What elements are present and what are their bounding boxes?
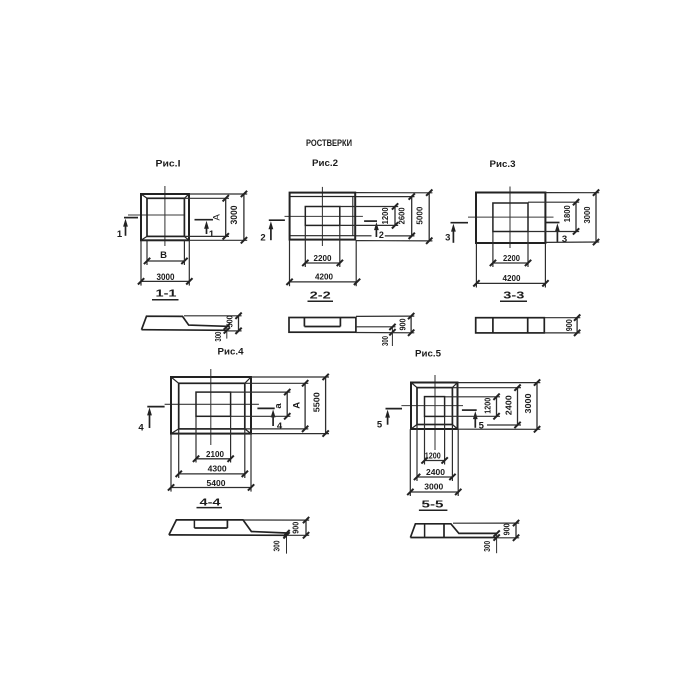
svg-text:4200: 4200 bbox=[315, 271, 333, 281]
svg-text:4200: 4200 bbox=[503, 273, 521, 283]
svg-text:900: 900 bbox=[292, 521, 301, 533]
svg-text:Рис.4: Рис.4 bbox=[218, 347, 245, 358]
svg-text:1200: 1200 bbox=[425, 451, 441, 461]
svg-text:3: 3 bbox=[445, 233, 450, 244]
svg-text:900: 900 bbox=[398, 318, 407, 330]
svg-text:3000: 3000 bbox=[229, 206, 239, 225]
svg-text:В: В bbox=[160, 250, 167, 261]
svg-text:2: 2 bbox=[379, 230, 384, 240]
svg-text:5000: 5000 bbox=[415, 206, 425, 224]
svg-text:5400: 5400 bbox=[207, 478, 226, 488]
svg-text:2600: 2600 bbox=[397, 207, 407, 224]
svg-text:Рис.2: Рис.2 bbox=[312, 158, 338, 169]
svg-text:300: 300 bbox=[483, 540, 492, 551]
svg-text:2100: 2100 bbox=[206, 449, 224, 459]
svg-text:4-4: 4-4 bbox=[200, 496, 221, 508]
svg-text:4: 4 bbox=[138, 423, 144, 434]
svg-text:Рис.I: Рис.I bbox=[156, 159, 181, 170]
svg-text:2400: 2400 bbox=[503, 395, 513, 415]
svg-text:300: 300 bbox=[272, 540, 281, 551]
svg-text:Рис.5: Рис.5 bbox=[415, 349, 442, 360]
svg-text:3000: 3000 bbox=[157, 272, 175, 282]
svg-text:300: 300 bbox=[381, 336, 390, 346]
svg-text:1-1: 1-1 bbox=[156, 287, 177, 299]
svg-text:900: 900 bbox=[565, 319, 574, 331]
svg-text:3000: 3000 bbox=[582, 206, 592, 223]
svg-text:3000: 3000 bbox=[424, 482, 443, 492]
svg-text:1: 1 bbox=[117, 229, 123, 240]
svg-text:3-3: 3-3 bbox=[503, 289, 524, 301]
svg-text:2400: 2400 bbox=[426, 467, 445, 477]
svg-text:5-5: 5-5 bbox=[422, 498, 444, 510]
svg-text:300: 300 bbox=[214, 331, 223, 341]
svg-text:4300: 4300 bbox=[208, 463, 227, 473]
svg-text:1: 1 bbox=[209, 229, 215, 240]
svg-text:Рис.3: Рис.3 bbox=[490, 159, 516, 170]
svg-text:2200: 2200 bbox=[503, 253, 520, 263]
svg-text:2200: 2200 bbox=[314, 253, 332, 263]
svg-text:5500: 5500 bbox=[311, 392, 321, 412]
svg-text:4: 4 bbox=[277, 421, 283, 432]
svg-text:А: А bbox=[291, 402, 302, 409]
svg-text:500: 500 bbox=[225, 315, 234, 327]
svg-text:1800: 1800 bbox=[562, 205, 572, 222]
svg-text:1200: 1200 bbox=[380, 207, 390, 224]
svg-text:2: 2 bbox=[260, 233, 265, 244]
svg-text:РОСТВЕРКИ: РОСТВЕРКИ bbox=[306, 138, 352, 149]
svg-text:900: 900 bbox=[503, 523, 512, 535]
svg-text:3: 3 bbox=[562, 234, 567, 245]
svg-text:а: а bbox=[273, 403, 284, 409]
svg-text:5: 5 bbox=[377, 420, 383, 431]
svg-text:3000: 3000 bbox=[523, 393, 533, 413]
svg-text:А: А bbox=[212, 213, 223, 220]
svg-text:2-2: 2-2 bbox=[310, 289, 331, 301]
svg-text:1200: 1200 bbox=[482, 398, 492, 414]
